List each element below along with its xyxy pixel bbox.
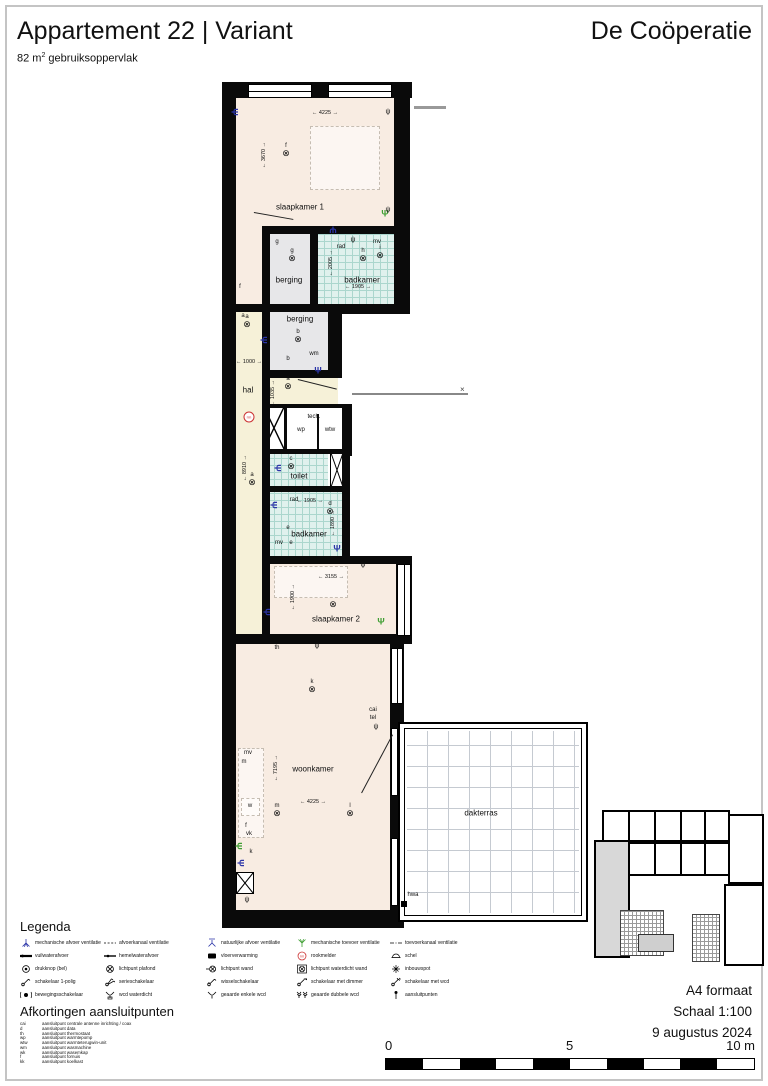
legend-item: geaarde enkele wcd — [206, 988, 280, 1001]
dimension-label: 1035 — [270, 380, 276, 406]
legend-label: hemelwaterafvoer — [119, 953, 159, 959]
legend-label: schakelaar met wcd — [405, 979, 449, 985]
legend-label: serieschakelaar — [119, 979, 154, 985]
legend-item: bewegingsschakelaar — [20, 988, 101, 1001]
scalebar — [385, 1058, 755, 1070]
legend-label: aansluitpunten — [405, 992, 438, 998]
abbreviations-title: Afkortingen aansluitpunten — [20, 1004, 174, 1019]
legend-item: lichtpunt plafond — [104, 962, 169, 975]
legend-item: schakelaar met dimmer — [296, 975, 380, 988]
legend-item: vloerverwarming — [206, 949, 280, 962]
dimension-label: 4225 — [312, 110, 338, 116]
scale-label: Schaal 1:100 — [552, 1001, 752, 1022]
legend-label: mechanische toevoer ventilatie — [311, 940, 380, 946]
annotation-label: wp — [297, 427, 305, 433]
socket-icon — [315, 643, 320, 650]
legend-item: geaarde dubbele wcd — [296, 988, 380, 1001]
inbouwspot-icon — [390, 964, 402, 974]
wcd-dubbel-icon — [296, 990, 308, 1000]
light-point-icon: l — [346, 803, 354, 817]
legend-label: drukknop (bel) — [35, 966, 67, 972]
kanaal-toevoer-icon — [390, 938, 402, 948]
aansluitpunt-icon — [390, 990, 402, 1000]
annotation-label: k — [250, 849, 253, 855]
page: Appartement 22 | Variant De Coöperatie 8… — [0, 0, 768, 1086]
scalebar-segment — [460, 1059, 497, 1069]
drukknop-icon — [20, 964, 32, 974]
scalebar-segment — [717, 1059, 754, 1069]
annotation-label: wtw — [325, 427, 335, 433]
annotation-label: rad — [337, 244, 346, 250]
legend-item: aansluitpunten — [390, 988, 458, 1001]
annotation-label: cai — [369, 707, 377, 713]
scalebar-segment — [644, 1059, 681, 1069]
dimension-label: 1905 — [297, 498, 323, 504]
annotation-label: tech. — [307, 414, 320, 420]
socket-icon — [386, 109, 391, 116]
legend-item: vuilwaterafvoer — [20, 949, 101, 962]
legend-label: inbouwspot — [405, 966, 430, 972]
annotation-label: m — [242, 759, 247, 765]
kanaal-afvoer-icon — [104, 938, 116, 948]
vent-exhaust-icon — [314, 367, 321, 376]
rookmelder-icon: rm — [296, 951, 308, 961]
room-label: berging — [276, 276, 303, 285]
legend-column: toevoerkanaal ventilatieschelinbouwspots… — [390, 936, 458, 1001]
room-label: toilet — [291, 472, 308, 481]
legend-label: schakelaar met dimmer — [311, 979, 363, 985]
sw-dimmer-icon — [296, 977, 308, 987]
vent-supply-icon — [234, 842, 243, 849]
room-label: dakterras — [464, 809, 497, 818]
socket-icon — [374, 724, 379, 731]
annotation-label: g — [275, 239, 278, 245]
sw-wcd-icon — [390, 977, 402, 987]
legend-label: bewegingsschakelaar — [35, 992, 83, 998]
dimension-label: 4225 — [300, 799, 326, 805]
legend-item: serieschakelaar — [104, 975, 169, 988]
room-label: woonkamer — [292, 765, 333, 774]
wcd-enkel-icon — [206, 990, 218, 1000]
light-point-icon: k — [308, 679, 316, 693]
legend-item: inbouwspot — [390, 962, 458, 975]
legend-column: mechanische toevoer ventilatiermrookmeld… — [296, 936, 380, 1001]
dimension-label: 1890 — [330, 510, 336, 536]
dimension-label: 1900 — [290, 584, 296, 610]
annotation-label: b — [286, 356, 289, 362]
annotation-label: vk — [246, 831, 252, 837]
format-label: A4 formaat — [552, 980, 752, 1001]
sw-1polig-icon — [20, 977, 32, 987]
overview-slab — [638, 934, 674, 952]
annotation-label: w — [248, 803, 252, 809]
light-point-icon — [329, 600, 337, 608]
legend-item: schel — [390, 949, 458, 962]
vent-mech-toevoer-icon — [296, 938, 308, 948]
vent-exhaust-icon — [262, 608, 271, 615]
vuilwater-icon — [20, 951, 32, 961]
vent-mech-afvoer-icon — [20, 938, 32, 948]
hemelwater-icon — [104, 951, 116, 961]
dimension-label: 8910 — [242, 455, 248, 481]
vent-exhaust-icon — [230, 108, 239, 115]
vent-exhaust-icon — [236, 859, 245, 866]
legend-column: natuurlijke afvoer ventilatievloerverwar… — [206, 936, 280, 1001]
room-label: slaapkamer 1 — [276, 203, 324, 212]
legend-item: schakelaar met wcd — [390, 975, 458, 988]
light-point-icon: a — [243, 314, 251, 328]
legend-item: wisselschakelaar — [206, 975, 280, 988]
annotation-label: f — [239, 284, 241, 290]
scalebar-segment — [680, 1059, 717, 1069]
dimension-label: 3670 — [261, 142, 267, 168]
legend-label: wisselschakelaar — [221, 979, 259, 985]
annotation-label: hwa — [407, 892, 418, 898]
light-point-icon: f — [282, 143, 290, 157]
legend-column: afvoerkanaal ventilatiehemelwaterafvoerl… — [104, 936, 169, 1001]
sw-wissel-icon — [206, 977, 218, 987]
sw-beweging-icon — [20, 990, 32, 1000]
drawing-info: A4 formaat Schaal 1:100 9 augustus 2024 — [552, 980, 752, 1043]
legend-label: wcd waterdicht — [119, 992, 152, 998]
annotation-label: f — [245, 823, 247, 829]
annotation-label: mv — [275, 540, 283, 546]
room-label: badkamer — [291, 530, 327, 539]
annotation-label: tel — [370, 715, 376, 721]
dimension-label: 1000 — [236, 359, 262, 365]
scalebar-segment — [496, 1059, 533, 1069]
socket-icon — [245, 897, 250, 904]
overview-block — [728, 814, 764, 884]
vent-supply-icon — [377, 618, 384, 627]
annotation-label: th — [274, 645, 279, 651]
vent-nat-afvoer-icon — [206, 938, 218, 948]
vent-exhaust-icon — [269, 501, 278, 508]
scalebar-segment — [386, 1059, 423, 1069]
light-point-icon: a — [248, 472, 256, 486]
scalebar-segment — [570, 1059, 607, 1069]
socket-icon — [351, 237, 356, 244]
legend-title: Legenda — [20, 919, 71, 934]
sw-serie-icon — [104, 977, 116, 987]
legend-item: toevoerkanaal ventilatie — [390, 936, 458, 949]
overview-block — [724, 884, 764, 966]
lp-wand-icon — [206, 964, 218, 974]
annotation-label: mv — [244, 750, 252, 756]
legend-item: natuurlijke afvoer ventilatie — [206, 936, 280, 949]
date-label: 9 augustus 2024 — [552, 1022, 752, 1043]
legend-item: mechanische afvoer ventilatie — [20, 936, 101, 949]
scalebar-end: 10 m — [726, 1038, 755, 1053]
legend-label: lichtpunt plafond — [119, 966, 155, 972]
overview-terrace — [692, 914, 720, 962]
scalebar-segment — [607, 1059, 644, 1069]
legend-item: lichtpunt wand — [206, 962, 280, 975]
legend-label: vuilwaterafvoer — [35, 953, 69, 959]
wcd-waterdicht-icon — [104, 990, 116, 1000]
lp-waterdicht-icon — [296, 964, 308, 974]
legend-label: afvoerkanaal ventilatie — [119, 940, 169, 946]
legend-item: afvoerkanaal ventilatie — [104, 936, 169, 949]
vent-exhaust-icon — [259, 336, 268, 343]
light-point-icon: h — [359, 248, 367, 262]
socket-icon — [361, 562, 366, 569]
vent-exhaust-icon — [273, 464, 282, 471]
scalebar-mid: 5 — [566, 1038, 573, 1053]
legend-label: schakelaar 1-polig — [35, 979, 76, 985]
dimension-label: 1905 — [345, 284, 371, 290]
legend-column: mechanische afvoer ventilatievuilwateraf… — [20, 936, 101, 1001]
scalebar-start: 0 — [385, 1038, 392, 1053]
room-label: berging — [287, 315, 314, 324]
lp-plafond-icon — [104, 964, 116, 974]
legend-label: natuurlijke afvoer ventilatie — [221, 940, 280, 946]
legend-label: schel — [405, 953, 417, 959]
vent-exhaust-icon — [333, 545, 340, 554]
abbreviation-desc: aansluitpunt koelkast — [42, 1059, 83, 1064]
legend-label: rookmelder — [311, 953, 336, 959]
legend-item: hemelwaterafvoer — [104, 949, 169, 962]
legend-label: lichtpunt waterdicht wand — [311, 966, 367, 972]
legend-label: geaarde enkele wcd — [221, 992, 266, 998]
light-point-icon: b — [294, 329, 302, 343]
light-point-icon: m — [273, 803, 281, 817]
light-point-icon: g — [288, 248, 296, 262]
abbreviations-list: caiaansluitpunt centrale antenne inricht… — [20, 1021, 131, 1064]
dimension-label: 2005 — [328, 250, 334, 276]
socket-icon — [386, 207, 391, 214]
abbreviation-key: kk — [20, 1059, 42, 1064]
dimension-label: 7195 — [273, 755, 279, 781]
vloerverwarming-icon — [206, 951, 218, 961]
legend-label: geaarde dubbele wcd — [311, 992, 359, 998]
dimension-label: 3155 — [318, 574, 344, 580]
vent-exhaust-icon — [329, 225, 336, 234]
legend-item: lichtpunt waterdicht wand — [296, 962, 380, 975]
light-point-icon: a — [284, 376, 292, 390]
legend-label: toevoerkanaal ventilatie — [405, 940, 458, 946]
legend-item: rmrookmelder — [296, 949, 380, 962]
legend-item: wcd waterdicht — [104, 988, 169, 1001]
scalebar-segment — [423, 1059, 460, 1069]
legend-item: drukknop (bel) — [20, 962, 101, 975]
room-label: slaapkamer 2 — [312, 615, 360, 624]
legend-item: schakelaar 1-polig — [20, 975, 101, 988]
schel-icon — [390, 951, 402, 961]
smoke-detector-icon: rm — [244, 412, 255, 423]
annotation-label: e — [289, 540, 292, 546]
light-point-icon: i — [376, 245, 384, 259]
annotation-label: wm — [309, 351, 318, 357]
room-label: hal — [243, 386, 254, 395]
light-point-icon: c — [287, 456, 295, 470]
scalebar-segment — [533, 1059, 570, 1069]
building-overview — [594, 808, 764, 962]
legend-label: vloerverwarming — [221, 953, 258, 959]
annotation-label: e — [286, 525, 289, 531]
legend-label: mechanische afvoer ventilatie — [35, 940, 101, 946]
legend-item: mechanische toevoer ventilatie — [296, 936, 380, 949]
legend-label: lichtpunt wand — [221, 966, 253, 972]
abbreviation-row: kkaansluitpunt koelkast — [20, 1059, 131, 1064]
svg-text:rm: rm — [300, 954, 304, 958]
